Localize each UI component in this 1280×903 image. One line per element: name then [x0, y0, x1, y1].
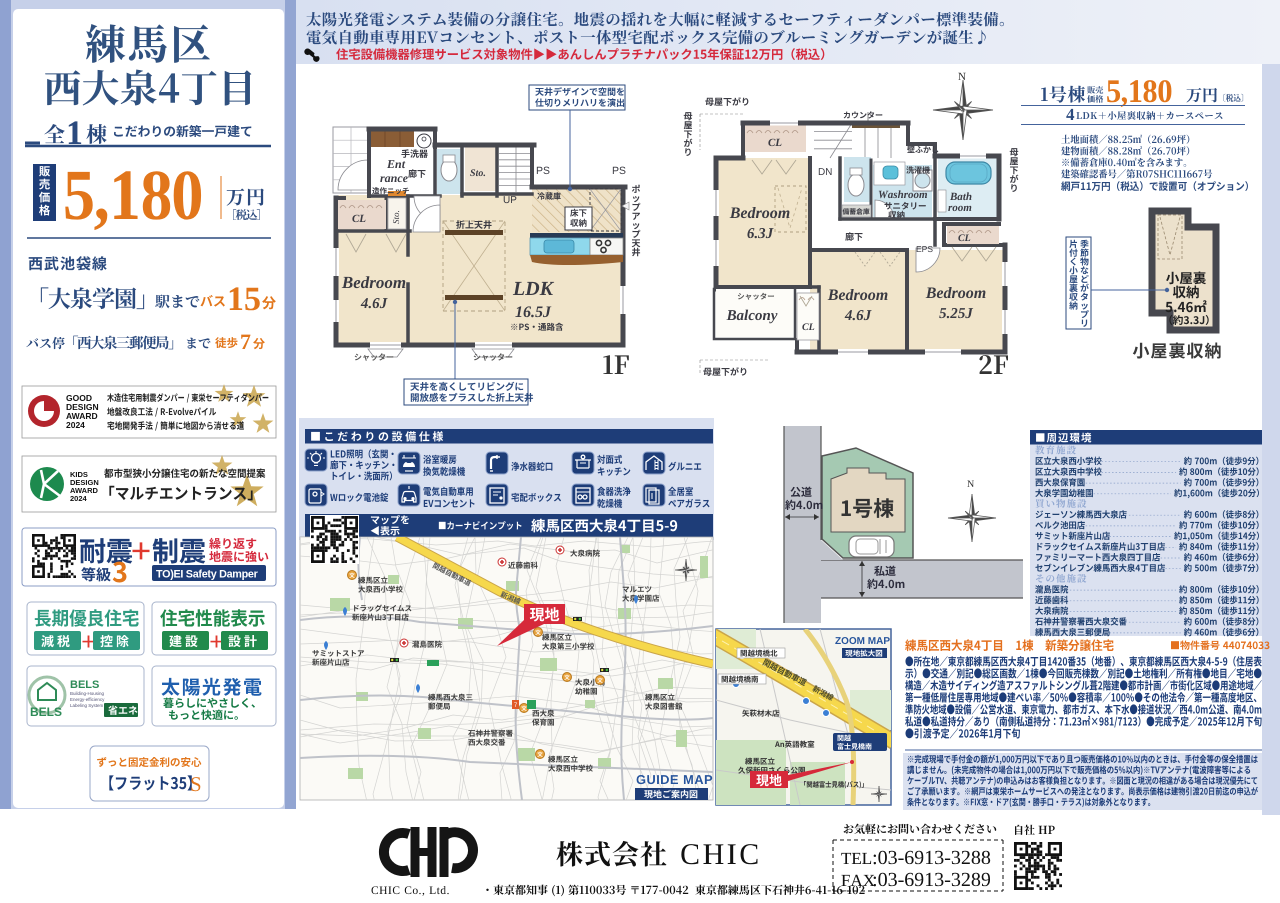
svg-text:Labeling System: Labeling System [70, 703, 104, 708]
svg-text:2024: 2024 [70, 494, 88, 503]
svg-text:2024: 2024 [66, 420, 85, 430]
svg-text:BELS: BELS [70, 679, 99, 691]
svg-text:Energy-efficiency: Energy-efficiency [70, 697, 105, 702]
svg-text:TO)EI Safety Damper: TO)EI Safety Damper [156, 569, 259, 581]
svg-text:Building-Housing: Building-Housing [70, 691, 105, 696]
svg-text:BELS: BELS [30, 705, 62, 719]
